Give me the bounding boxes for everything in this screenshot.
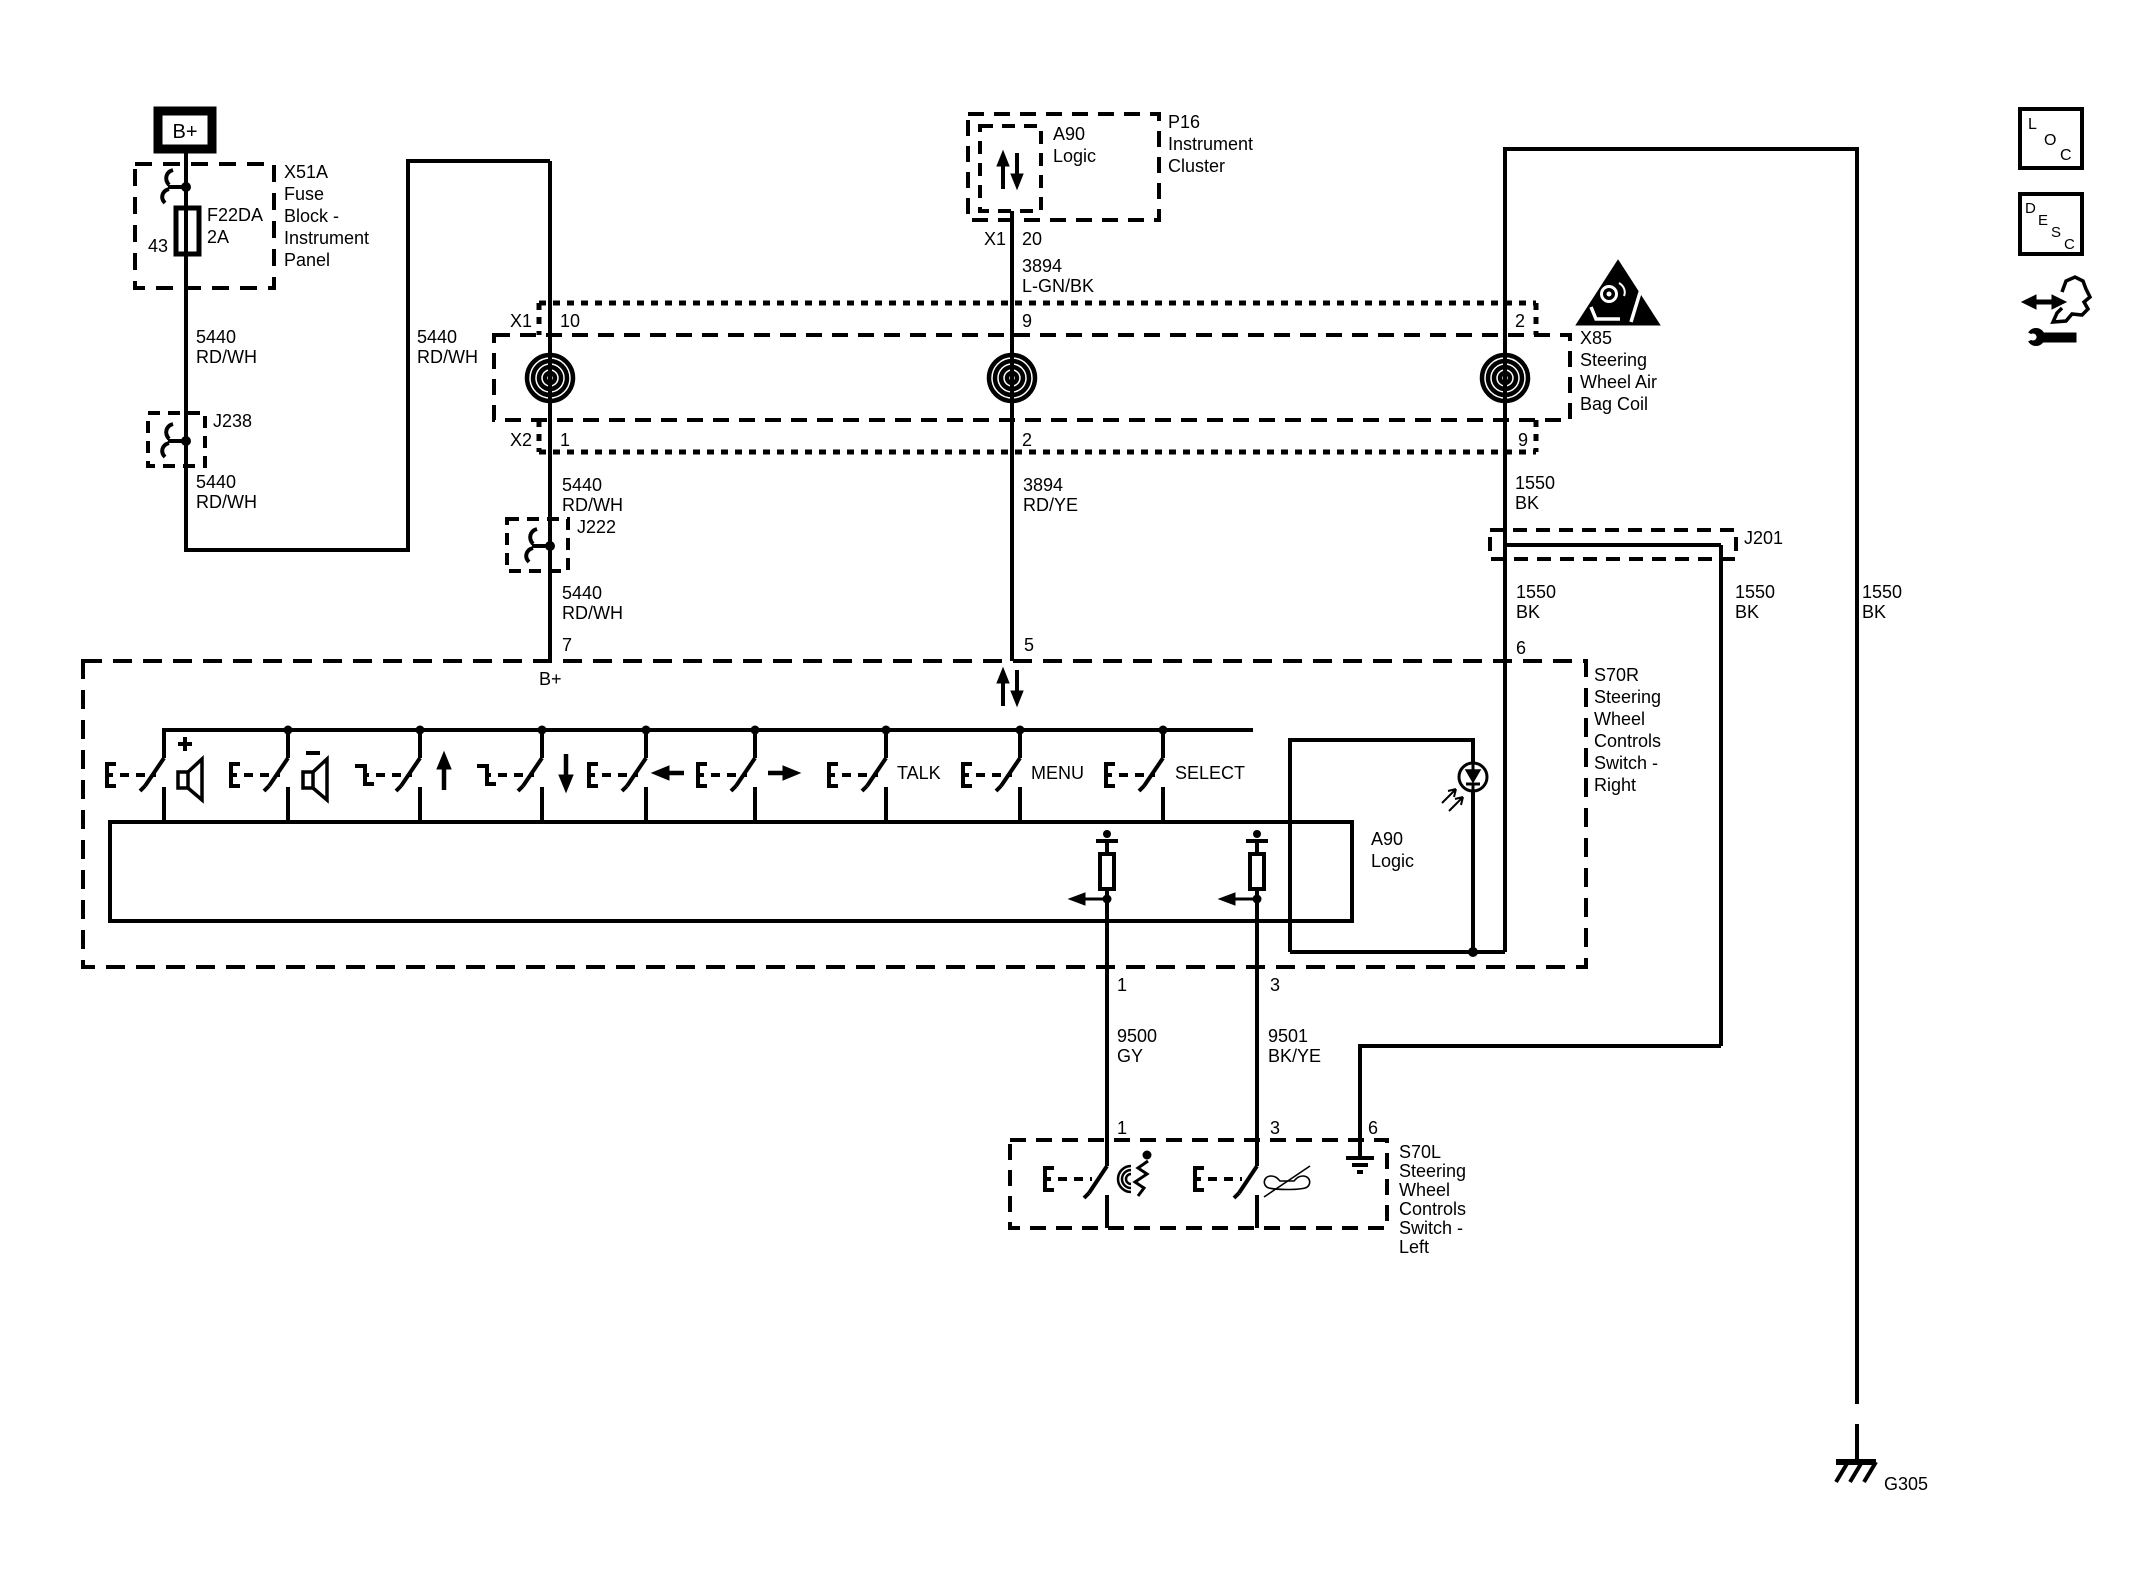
svg-text:3: 3 bbox=[1270, 975, 1280, 995]
svg-text:Logic: Logic bbox=[1053, 146, 1096, 166]
svg-text:SELECT: SELECT bbox=[1175, 763, 1245, 783]
svg-text:5440: 5440 bbox=[417, 327, 457, 347]
svg-text:RD/WH: RD/WH bbox=[562, 603, 623, 623]
svg-text:6: 6 bbox=[1516, 638, 1526, 658]
svg-text:Cluster: Cluster bbox=[1168, 156, 1225, 176]
svg-text:5: 5 bbox=[1024, 635, 1034, 655]
svg-text:C: C bbox=[2060, 147, 2072, 164]
svg-text:5440: 5440 bbox=[196, 327, 236, 347]
svg-text:1550: 1550 bbox=[1515, 473, 1555, 493]
svg-text:7: 7 bbox=[562, 635, 572, 655]
svg-text:S: S bbox=[2051, 224, 2061, 241]
svg-text:S70R: S70R bbox=[1594, 665, 1639, 685]
svg-text:Bag Coil: Bag Coil bbox=[1580, 394, 1648, 414]
svg-text:Switch -: Switch - bbox=[1399, 1218, 1463, 1238]
svg-text:10: 10 bbox=[560, 311, 580, 331]
svg-text:B+: B+ bbox=[172, 121, 197, 143]
svg-text:X51A: X51A bbox=[284, 162, 328, 182]
svg-text:9501: 9501 bbox=[1268, 1026, 1308, 1046]
svg-text:X1: X1 bbox=[510, 311, 532, 331]
svg-text:A90: A90 bbox=[1371, 829, 1403, 849]
svg-text:Steering: Steering bbox=[1580, 350, 1647, 370]
svg-text:RD/WH: RD/WH bbox=[196, 347, 257, 367]
svg-text:20: 20 bbox=[1022, 229, 1042, 249]
svg-text:BK: BK bbox=[1515, 493, 1539, 513]
svg-text:D: D bbox=[2025, 200, 2036, 217]
svg-text:1550: 1550 bbox=[1862, 582, 1902, 602]
svg-text:Steering: Steering bbox=[1594, 687, 1661, 707]
svg-text:RD/WH: RD/WH bbox=[196, 492, 257, 512]
svg-text:Instrument: Instrument bbox=[284, 228, 369, 248]
svg-text:L: L bbox=[2028, 116, 2037, 133]
svg-text:GY: GY bbox=[1117, 1046, 1143, 1066]
svg-text:BK: BK bbox=[1862, 602, 1886, 622]
svg-text:5440: 5440 bbox=[196, 472, 236, 492]
svg-text:3894: 3894 bbox=[1022, 256, 1062, 276]
svg-text:J201: J201 bbox=[1744, 528, 1783, 548]
svg-text:TALK: TALK bbox=[897, 763, 941, 783]
svg-text:3: 3 bbox=[1270, 1118, 1280, 1138]
svg-text:RD/WH: RD/WH bbox=[562, 495, 623, 515]
svg-text:Fuse: Fuse bbox=[284, 184, 324, 204]
svg-text:9: 9 bbox=[1022, 311, 1032, 331]
svg-text:1: 1 bbox=[1117, 975, 1127, 995]
svg-text:6: 6 bbox=[1368, 1118, 1378, 1138]
svg-text:O: O bbox=[2044, 132, 2056, 149]
svg-text:5440: 5440 bbox=[562, 583, 602, 603]
svg-text:P16: P16 bbox=[1168, 112, 1200, 132]
svg-text:X85: X85 bbox=[1580, 328, 1612, 348]
svg-text:BK: BK bbox=[1735, 602, 1759, 622]
svg-text:9: 9 bbox=[1518, 430, 1528, 450]
svg-text:2: 2 bbox=[1022, 430, 1032, 450]
svg-text:Logic: Logic bbox=[1371, 851, 1414, 871]
svg-text:J238: J238 bbox=[213, 411, 252, 431]
svg-text:2A: 2A bbox=[207, 227, 229, 247]
svg-text:5440: 5440 bbox=[562, 475, 602, 495]
svg-text:L-GN/BK: L-GN/BK bbox=[1022, 276, 1094, 296]
svg-text:9500: 9500 bbox=[1117, 1026, 1157, 1046]
svg-text:G305: G305 bbox=[1884, 1474, 1928, 1494]
svg-text:2: 2 bbox=[1515, 311, 1525, 331]
svg-text:Instrument: Instrument bbox=[1168, 134, 1253, 154]
svg-text:Steering: Steering bbox=[1399, 1161, 1466, 1181]
svg-text:Switch -: Switch - bbox=[1594, 753, 1658, 773]
svg-text:S70L: S70L bbox=[1399, 1142, 1441, 1162]
svg-text:1550: 1550 bbox=[1516, 582, 1556, 602]
svg-text:Controls: Controls bbox=[1399, 1199, 1466, 1219]
svg-text:1550: 1550 bbox=[1735, 582, 1775, 602]
svg-text:B+: B+ bbox=[539, 669, 562, 689]
svg-text:Wheel Air: Wheel Air bbox=[1580, 372, 1657, 392]
svg-text:J222: J222 bbox=[577, 517, 616, 537]
svg-text:1: 1 bbox=[1117, 1118, 1127, 1138]
svg-text:RD/WH: RD/WH bbox=[417, 347, 478, 367]
svg-text:Right: Right bbox=[1594, 775, 1636, 795]
svg-text:BK/YE: BK/YE bbox=[1268, 1046, 1321, 1066]
svg-text:RD/YE: RD/YE bbox=[1023, 495, 1078, 515]
svg-text:Controls: Controls bbox=[1594, 731, 1661, 751]
svg-text:1: 1 bbox=[560, 430, 570, 450]
svg-text:Wheel: Wheel bbox=[1399, 1180, 1450, 1200]
svg-text:Block -: Block - bbox=[284, 206, 339, 226]
svg-text:Left: Left bbox=[1399, 1237, 1429, 1257]
svg-text:Wheel: Wheel bbox=[1594, 709, 1645, 729]
svg-text:C: C bbox=[2064, 236, 2075, 253]
svg-text:BK: BK bbox=[1516, 602, 1540, 622]
svg-text:X1: X1 bbox=[984, 229, 1006, 249]
svg-text:MENU: MENU bbox=[1031, 763, 1084, 783]
svg-text:X2: X2 bbox=[510, 430, 532, 450]
svg-text:A90: A90 bbox=[1053, 124, 1085, 144]
svg-text:3894: 3894 bbox=[1023, 475, 1063, 495]
svg-text:43: 43 bbox=[148, 236, 168, 256]
svg-text:F22DA: F22DA bbox=[207, 205, 263, 225]
svg-text:E: E bbox=[2038, 212, 2048, 229]
svg-text:Panel: Panel bbox=[284, 250, 330, 270]
